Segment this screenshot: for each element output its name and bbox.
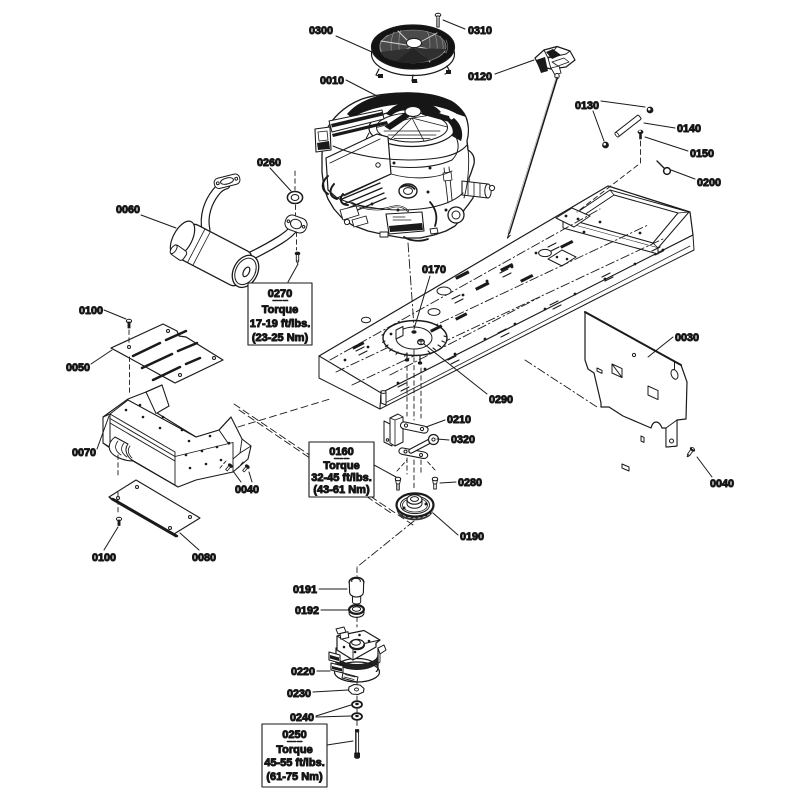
svg-text:(43-61 Nm): (43-61 Nm)	[313, 484, 370, 496]
svg-text:45-55 ft/lbs.: 45-55 ft/lbs.	[264, 757, 325, 769]
svg-text:0100: 0100	[92, 552, 116, 564]
svg-text:Torque: Torque	[276, 744, 312, 756]
svg-text:0050: 0050	[66, 362, 90, 374]
svg-text:0192: 0192	[295, 605, 319, 617]
svg-text:0150: 0150	[690, 148, 714, 160]
svg-text:32-45 ft/lbs.: 32-45 ft/lbs.	[311, 472, 372, 484]
svg-text:0040: 0040	[710, 478, 734, 490]
svg-text:0160: 0160	[329, 446, 353, 458]
svg-text:0220: 0220	[291, 666, 315, 678]
svg-text:0010: 0010	[320, 75, 344, 87]
svg-text:0300: 0300	[309, 25, 333, 37]
svg-text:0191: 0191	[293, 584, 317, 596]
svg-text:0250: 0250	[282, 729, 306, 741]
svg-text:0270: 0270	[268, 288, 292, 300]
svg-text:0200: 0200	[697, 177, 721, 189]
svg-text:0030: 0030	[675, 332, 699, 344]
svg-text:0240: 0240	[290, 712, 314, 724]
svg-text:0210: 0210	[447, 414, 471, 426]
svg-text:0310: 0310	[468, 25, 492, 37]
svg-text:Torque: Torque	[262, 304, 298, 316]
svg-text:Torque: Torque	[323, 460, 359, 472]
svg-text:17-19 ft/lbs.: 17-19 ft/lbs.	[250, 318, 311, 330]
svg-text:0120: 0120	[468, 71, 492, 83]
svg-text:0100: 0100	[79, 305, 103, 317]
svg-text:0170: 0170	[422, 264, 446, 276]
svg-text:(61-75 Nm): (61-75 Nm)	[266, 771, 323, 783]
svg-text:0140: 0140	[677, 123, 701, 135]
svg-text:0130: 0130	[575, 100, 599, 112]
svg-text:0040: 0040	[235, 484, 259, 496]
svg-text:0320: 0320	[451, 434, 475, 446]
svg-text:0290: 0290	[489, 394, 513, 406]
svg-text:0280: 0280	[458, 477, 482, 489]
svg-text:0080: 0080	[192, 552, 216, 564]
svg-text:(23-25 Nm): (23-25 Nm)	[252, 332, 309, 344]
svg-text:0190: 0190	[460, 531, 484, 543]
svg-text:0260: 0260	[257, 157, 281, 169]
svg-text:0070: 0070	[72, 447, 96, 459]
svg-text:0230: 0230	[287, 688, 311, 700]
svg-text:0060: 0060	[116, 204, 140, 216]
